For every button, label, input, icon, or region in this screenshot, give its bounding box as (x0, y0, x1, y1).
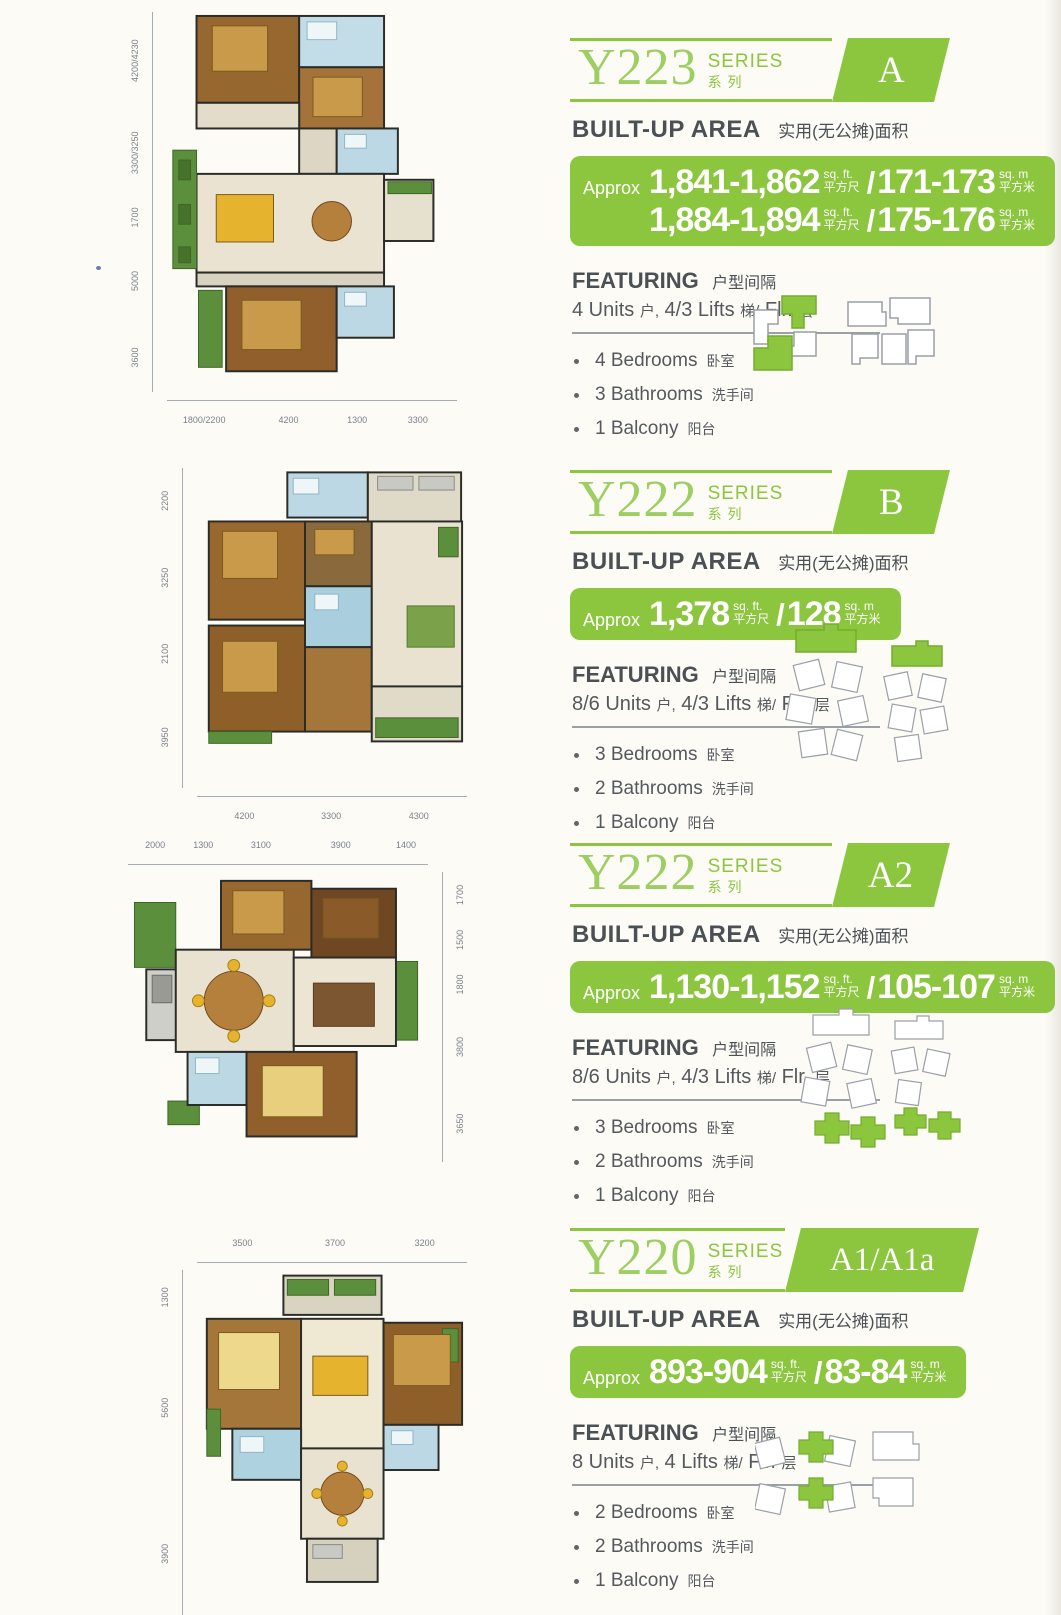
series-title: Y223 SERIES 系列 (570, 38, 832, 102)
approx-label: Approx (583, 1368, 640, 1389)
info-panel-y223a: Y223 SERIES 系列 A BUILT-UP AREA 实用(无公摊)面积… (570, 38, 942, 452)
floor-plan-art (128, 873, 428, 1163)
bullet-dot (574, 753, 579, 758)
dimension-label: 3250 (148, 534, 182, 622)
bullet-dot (574, 1160, 579, 1165)
dimension-label: 3900 (297, 840, 384, 864)
series-label: SERIES 系列 (708, 857, 784, 894)
feature-item: 2 Bathrooms洗手间 (574, 1151, 804, 1173)
dimension-label: 3300 (379, 401, 457, 425)
dimension-label: 3600 (118, 324, 152, 392)
sqm-unit: sq. m平方米 (910, 1358, 946, 1384)
dimension-label: 5000 (118, 238, 152, 324)
site-plan-diagram (748, 290, 938, 380)
builtup-heading: BUILT-UP AREA 实用(无公摊)面积 (572, 1306, 942, 1334)
series-name: Y223 (578, 42, 698, 94)
dimension-label: 3200 (382, 1238, 467, 1262)
dimension-label: 1700 (443, 872, 477, 918)
dimension-ruler-top: 350037003200 (197, 1238, 467, 1263)
floor-plan-art (167, 12, 457, 392)
dimension-ruler-right: 17001500180038003650 (442, 872, 477, 1162)
unit-type-flag: B (832, 470, 950, 534)
series-label: SERIES 系列 (708, 1242, 784, 1279)
dimension-label: 1800 (443, 961, 477, 1008)
unit-type-flag: A1/A1a (785, 1228, 979, 1292)
area-badge: Approx 893-904 sq. ft.平方尺 / 83-84 sq. m平… (570, 1346, 966, 1398)
floor-plan-y222b: 2200325021003950 (148, 468, 467, 821)
dimension-label: 1700 (118, 196, 152, 238)
dimension-label: 3950 (148, 686, 182, 788)
dimension-label: 1300 (148, 1270, 182, 1324)
series-banner: Y222 SERIES 系列 A2 (570, 843, 942, 907)
dimension-ruler-top: 20001300310039001400 (128, 840, 428, 865)
unit-type-flag: A2 (832, 843, 950, 907)
series-name: Y222 (578, 474, 698, 526)
sqft-unit: sq. ft.平方尺 (824, 973, 860, 999)
feature-item: 2 Bathrooms洗手间 (574, 1536, 804, 1558)
feature-item: 1 Balcony阳台 (574, 418, 804, 440)
scan-speck (96, 266, 101, 270)
builtup-heading: BUILT-UP AREA 实用(无公摊)面积 (572, 548, 942, 576)
series-banner: Y220 SERIES 系列 A1/A1a (570, 1228, 942, 1292)
dimension-ruler-bottom: 420033004300 (197, 796, 467, 821)
bullet-dot (574, 1511, 579, 1516)
series-title: Y222 SERIES 系列 (570, 470, 832, 534)
floor-plan-art (197, 468, 467, 788)
bullet-dot (574, 427, 579, 432)
dimension-ruler-left: 2200325021003950 (148, 468, 183, 788)
info-panel-y222a2: Y222 SERIES 系列 A2 BUILT-UP AREA 实用(无公摊)面… (570, 843, 942, 1219)
approx-label: Approx (583, 178, 640, 199)
area-line: 893-904 sq. ft.平方尺 / 83-84 sq. m平方米 (649, 1355, 951, 1391)
feature-item: 3 Bathrooms洗手间 (574, 384, 804, 406)
dimension-ruler-left: 4200/42303300/3250170050003600 (118, 12, 153, 392)
series-name: Y222 (578, 847, 698, 899)
series-label: SERIES 系列 (708, 52, 784, 89)
area-line: 1,884-1,894 sq. ft.平方尺 / 175-176 sq. m平方… (649, 203, 1040, 239)
approx-label: Approx (583, 983, 640, 1004)
bullet-dot (574, 1545, 579, 1550)
series-banner: Y223 SERIES 系列 A (570, 38, 942, 102)
feature-list: 3 Bedrooms卧室 2 Bathrooms洗手间 1 Balcony阳台 (570, 1117, 804, 1207)
dimension-label: 1300 (336, 401, 379, 425)
sqft-unit: sq. ft.平方尺 (771, 1358, 807, 1384)
approx-label: Approx (583, 610, 640, 631)
site-plan-diagram (755, 1426, 925, 1531)
bullet-dot (574, 1579, 579, 1584)
builtup-heading: BUILT-UP AREA 实用(无公摊)面积 (572, 921, 942, 949)
dimension-label: 5600 (148, 1324, 182, 1492)
dimension-label: 3800 (443, 1008, 477, 1086)
dimension-label: 3650 (443, 1086, 477, 1162)
area-badge: Approx 1,841-1,862 sq. ft.平方尺 / 171-173 … (570, 156, 1055, 246)
bullet-dot (574, 787, 579, 792)
bullet-dot (574, 821, 579, 826)
dimension-label: 3500 (197, 1238, 288, 1262)
dimension-label: 3700 (288, 1238, 383, 1262)
sqft-unit: sq. ft.平方尺 (824, 206, 860, 232)
dimension-ruler-bottom: 1800/2200420013003300 (167, 400, 457, 425)
series-label: SERIES 系列 (708, 484, 784, 521)
series-title: Y220 SERIES 系列 (570, 1228, 785, 1292)
info-panel-y222b: Y222 SERIES 系列 B BUILT-UP AREA 实用(无公摊)面积… (570, 470, 942, 846)
feature-item: 1 Balcony阳台 (574, 1185, 804, 1207)
dimension-label: 1300 (182, 840, 224, 864)
sqft-unit: sq. ft.平方尺 (824, 168, 860, 194)
feature-list: 3 Bedrooms卧室 2 Bathrooms洗手间 1 Balcony阳台 (570, 744, 804, 834)
area-line: 1,841-1,862 sq. ft.平方尺 / 171-173 sq. m平方… (649, 165, 1040, 201)
info-panel-y220a1: Y220 SERIES 系列 A1/A1a BUILT-UP AREA 实用(无… (570, 1228, 942, 1604)
bullet-dot (574, 359, 579, 364)
sqm-unit: sq. m平方米 (999, 973, 1035, 999)
site-plan-diagram (780, 620, 965, 775)
dimension-label: 4200 (197, 797, 292, 821)
area-line: 1,130-1,152 sq. ft.平方尺 / 105-107 sq. m平方… (649, 970, 1040, 1006)
series-banner: Y222 SERIES 系列 B (570, 470, 942, 534)
dimension-label: 3100 (224, 840, 297, 864)
sqft-unit: sq. ft.平方尺 (733, 600, 769, 626)
dimension-label: 4300 (370, 797, 467, 821)
dimension-label: 4200/4230 (118, 12, 152, 110)
sqm-unit: sq. m平方米 (999, 206, 1035, 232)
feature-item: 1 Balcony阳台 (574, 812, 804, 834)
dimension-label: 3300/3250 (118, 110, 152, 196)
floor-plan-y223a: 4200/42303300/3250170050003600 (118, 12, 457, 425)
unit-type-flag: A (832, 38, 950, 102)
brochure-page: 4200/42303300/3250170050003600 (0, 0, 1061, 1615)
bullet-dot (574, 1126, 579, 1131)
bullet-dot (574, 1194, 579, 1199)
site-plan-diagram (795, 1005, 970, 1160)
dimension-ruler-left: 130056003900 (148, 1270, 183, 1615)
dimension-label: 4200 (241, 401, 335, 425)
sqm-unit: sq. m平方米 (999, 168, 1035, 194)
floor-plan-y220a1: 130056003900 350037003200 (148, 1238, 467, 1615)
dimension-label: 2100 (148, 622, 182, 686)
feature-item: 1 Balcony阳台 (574, 1570, 804, 1592)
builtup-heading: BUILT-UP AREA 实用(无公摊)面积 (572, 116, 942, 144)
bullet-dot (574, 393, 579, 398)
floor-plan-y222a2: 20001300310039001400 (128, 840, 477, 1163)
dimension-label: 1800/2200 (167, 401, 241, 425)
dimension-label: 3900 (148, 1492, 182, 1615)
floor-plan-art (197, 1271, 467, 1615)
series-name: Y220 (578, 1232, 698, 1284)
dimension-label: 2000 (128, 840, 182, 864)
dimension-label: 2200 (148, 468, 182, 534)
feature-item: 2 Bathrooms洗手间 (574, 778, 804, 800)
dimension-label: 3300 (292, 797, 371, 821)
series-title: Y222 SERIES 系列 (570, 843, 832, 907)
dimension-label: 1400 (384, 840, 428, 864)
feature-item: 3 Bedrooms卧室 (574, 1117, 804, 1139)
feature-item: 3 Bedrooms卧室 (574, 744, 804, 766)
dimension-label: 1500 (443, 918, 477, 961)
